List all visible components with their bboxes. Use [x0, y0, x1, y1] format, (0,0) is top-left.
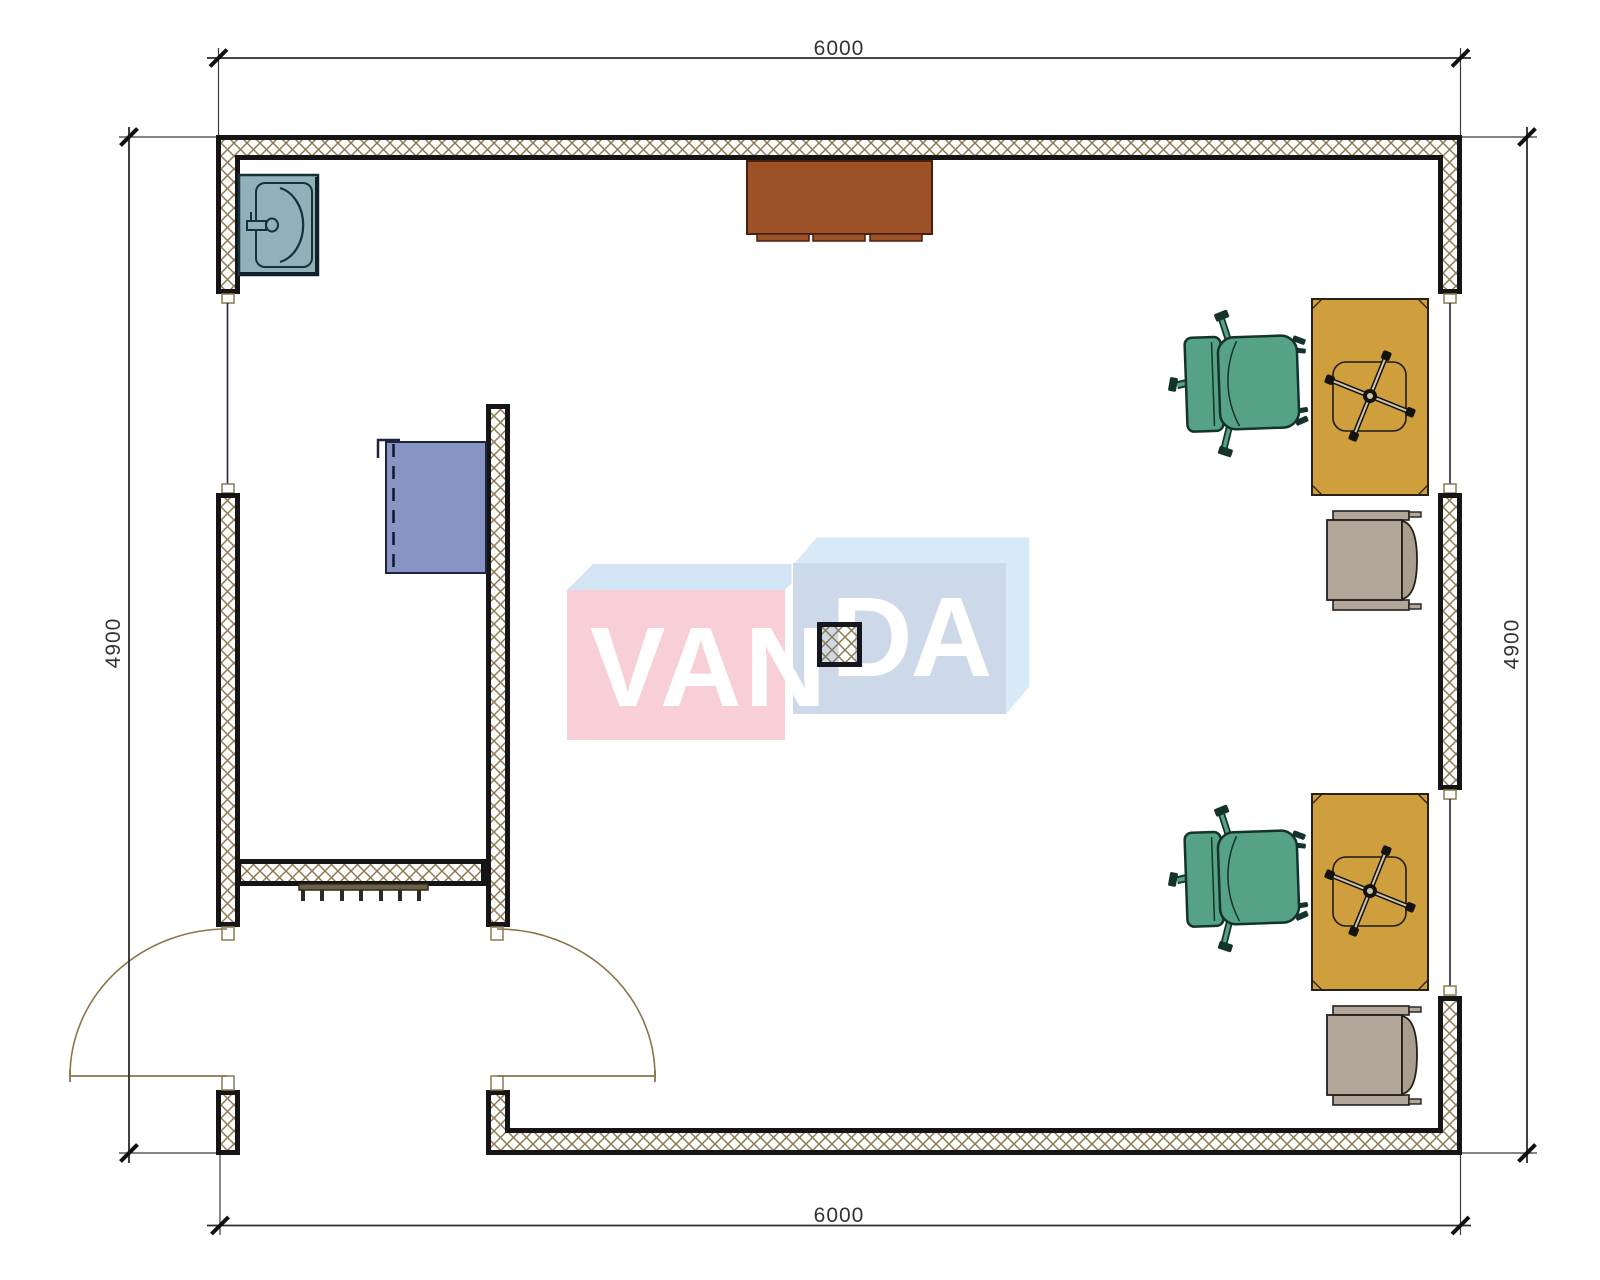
- svg-text:4900: 4900: [102, 618, 125, 669]
- svg-text:VAN: VAN: [590, 604, 829, 730]
- svg-text:6000: 6000: [814, 37, 865, 60]
- svg-text:6000: 6000: [814, 1204, 865, 1227]
- svg-text:4900: 4900: [1501, 619, 1524, 670]
